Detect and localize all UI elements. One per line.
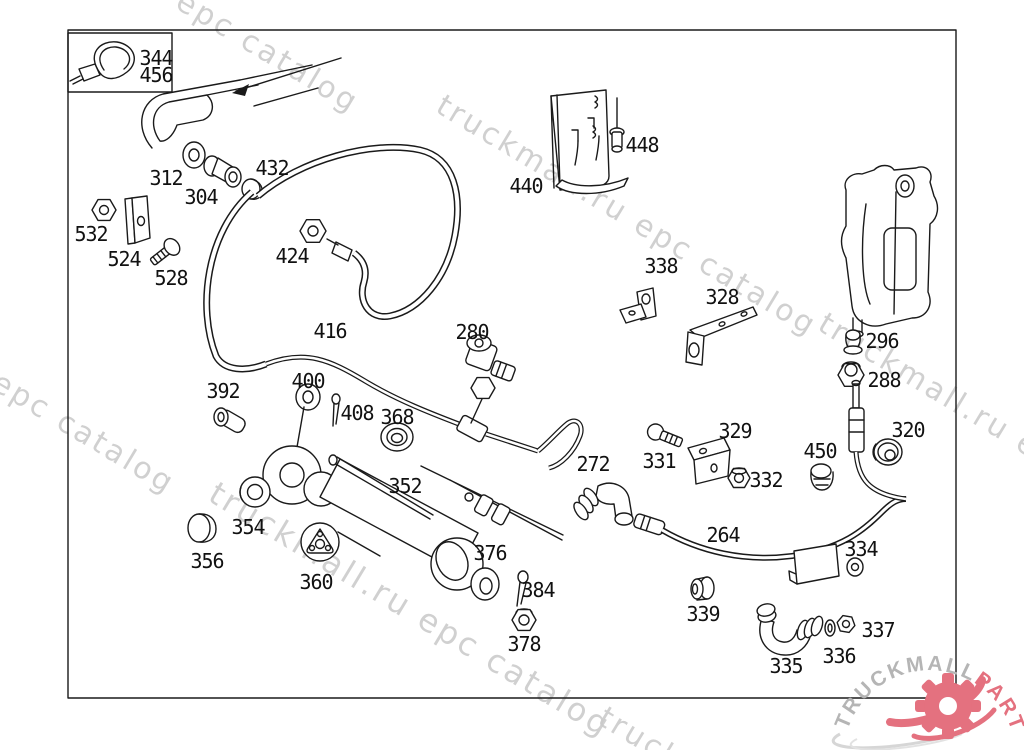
part-label-352: 352 <box>388 474 421 498</box>
part-label-400: 400 <box>291 369 324 393</box>
part-label-456: 456 <box>139 63 172 87</box>
part-label-416: 416 <box>313 319 346 343</box>
part-label-354: 354 <box>231 515 264 539</box>
part-label-337: 337 <box>861 618 894 642</box>
part-label-280: 280 <box>455 320 488 344</box>
part-label-440: 440 <box>509 174 542 198</box>
part-label-360: 360 <box>299 570 332 594</box>
part-label-332: 332 <box>749 468 782 492</box>
part-label-264: 264 <box>706 523 739 547</box>
part-label-356: 356 <box>190 549 223 573</box>
part-label-296: 296 <box>865 329 898 353</box>
part-label-432: 432 <box>255 156 288 180</box>
part-labels-layer: 3444563123044325325245284244404483383282… <box>0 0 1024 750</box>
part-label-328: 328 <box>705 285 738 309</box>
part-label-288: 288 <box>867 368 900 392</box>
part-label-304: 304 <box>184 185 217 209</box>
part-label-329: 329 <box>718 419 751 443</box>
part-label-312: 312 <box>149 166 182 190</box>
part-label-272: 272 <box>576 452 609 476</box>
part-label-368: 368 <box>380 405 413 429</box>
part-label-334: 334 <box>844 537 877 561</box>
part-label-524: 524 <box>107 247 140 271</box>
part-label-532: 532 <box>74 222 107 246</box>
part-label-331: 331 <box>642 449 675 473</box>
part-label-335: 335 <box>769 654 802 678</box>
part-label-320: 320 <box>891 418 924 442</box>
part-label-392: 392 <box>206 379 239 403</box>
part-label-424: 424 <box>275 244 308 268</box>
part-label-376: 376 <box>473 541 506 565</box>
part-label-339: 339 <box>686 602 719 626</box>
diagram-canvas: truckmall.ru epc catalog truckmall.ru ep… <box>0 0 1024 750</box>
part-label-338: 338 <box>644 254 677 278</box>
part-label-408: 408 <box>340 401 373 425</box>
part-label-528: 528 <box>154 266 187 290</box>
truckmall-logo: TRUCKMALLPARTS <box>812 642 1024 750</box>
part-label-450: 450 <box>803 439 836 463</box>
part-label-384: 384 <box>521 578 554 602</box>
part-label-448: 448 <box>625 133 658 157</box>
part-label-378: 378 <box>507 632 540 656</box>
